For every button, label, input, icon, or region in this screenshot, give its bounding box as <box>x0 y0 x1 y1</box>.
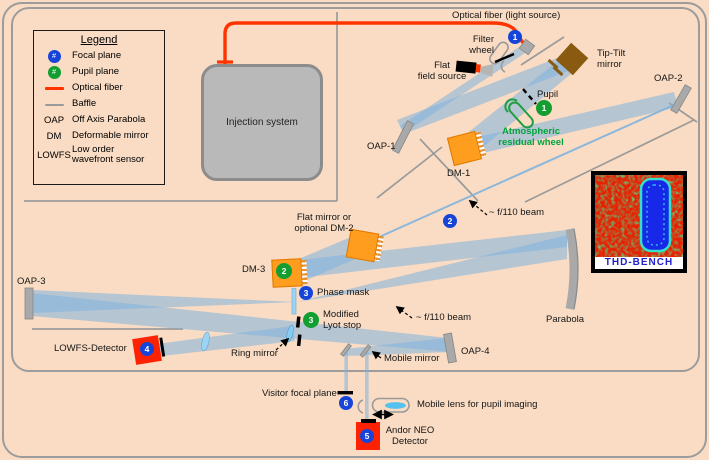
label-flat-dm2: Flat mirror or optional DM-2 <box>290 212 358 234</box>
andor-detector-window <box>361 419 376 424</box>
mobile-lens-element <box>385 402 406 409</box>
legend-symbol-cell <box>36 104 72 106</box>
legend-title: Legend <box>36 34 162 46</box>
injection-system-box: Injection system <box>201 64 323 181</box>
legend-item-lowfs: LOWFS Low order wavefront sensor <box>36 145 162 166</box>
injection-system-label: Injection system <box>226 117 298 128</box>
label-pupil: Pupil <box>537 89 558 100</box>
oap3-mirror <box>25 288 33 319</box>
focal-plane-icon: # <box>48 50 61 63</box>
thd-bench-inset-image: THD-BENCH <box>591 171 687 273</box>
focal-plane-marker-4: 4 <box>140 342 154 356</box>
arrow-f110-upper <box>470 201 487 215</box>
focal-plane-marker-6: 6 <box>339 396 353 410</box>
label-oap2: OAP-2 <box>654 73 683 84</box>
legend-symbol-cell: # <box>36 50 72 63</box>
label-parabola: Parabola <box>546 314 584 325</box>
beam-to-andor <box>365 352 369 421</box>
legend-label: Focal plane <box>72 51 121 61</box>
label-lyot-stop: Modified Lyot stop <box>323 309 361 331</box>
label-lowfs-detector: LOWFS-Detector <box>54 343 127 354</box>
label-dm3: DM-3 <box>242 264 265 275</box>
legend-item-pupil: # Pupil plane <box>36 65 162 80</box>
visitor-focal-plane-marker <box>338 391 354 394</box>
legend-term: DM <box>36 131 72 142</box>
focal-plane-marker-3: 3 <box>299 286 313 300</box>
arrow-f110-lower <box>397 307 412 318</box>
pupil-plane-marker-1: 1 <box>536 100 552 116</box>
legend-label: Optical fiber <box>72 83 123 93</box>
pupil-plane-marker-2: 2 <box>276 263 292 279</box>
baffle-icon <box>45 104 64 106</box>
label-atmospheric-wheel: Atmospheric residual wheel <box>493 126 569 148</box>
label-ring-mirror: Ring mirror <box>231 348 278 359</box>
label-f110-lower: ~ f/110 beam <box>416 312 471 323</box>
legend-definition: Off Axis Parabola <box>72 115 145 125</box>
pupil-plane-marker-3: 3 <box>303 312 319 328</box>
focal-plane-marker-5: 5 <box>360 429 374 443</box>
legend-symbol-cell: # <box>36 66 72 79</box>
legend-label: Pupil plane <box>72 67 119 77</box>
label-f110-upper: ~ f/110 beam <box>489 207 544 218</box>
legend-definition: Deformable mirror <box>72 131 149 141</box>
label-tip-tilt: Tip-Tilt mirror <box>597 48 625 70</box>
beam-to-visitor-focus <box>344 351 348 393</box>
parabola-mirror <box>570 229 574 309</box>
legend-term: OAP <box>36 115 72 126</box>
optical-bench-diagram: Legend # Focal plane # Pupil plane Optic… <box>0 0 709 460</box>
legend-item-focal: # Focal plane <box>36 49 162 64</box>
label-dm1: DM-1 <box>447 168 470 179</box>
legend-definition: Low order wavefront sensor <box>72 145 144 166</box>
label-oap1: OAP-1 <box>367 141 396 152</box>
mobile-lens-rail-arc <box>358 400 363 413</box>
optical-fiber-icon <box>45 87 64 90</box>
legend-symbol-cell <box>36 87 72 90</box>
label-mobile-lens: Mobile lens for pupil imaging <box>417 399 537 410</box>
legend-item-dm: DM Deformable mirror <box>36 129 162 144</box>
focal-plane-marker-2: 2 <box>443 214 457 228</box>
focal-plane-marker-1: 1 <box>508 30 522 44</box>
label-phase-mask: Phase mask <box>317 287 369 298</box>
coronagraph-image <box>595 175 683 257</box>
thd-bench-caption: THD-BENCH <box>595 257 683 269</box>
label-mobile-mirror: Mobile mirror <box>384 353 439 364</box>
legend-item-oap: OAP Off Axis Parabola <box>36 113 162 128</box>
legend-item-fiber: Optical fiber <box>36 81 162 96</box>
legend-box: Legend # Focal plane # Pupil plane Optic… <box>33 30 165 185</box>
label-flat-field-source: Flat field source <box>411 60 473 82</box>
legend-label: Baffle <box>72 99 96 109</box>
label-oap3: OAP-3 <box>17 276 46 287</box>
label-filter-wheel: Filter wheel <box>452 34 494 56</box>
label-andor: Andor NEO Detector <box>383 425 437 447</box>
legend-item-baffle: Baffle <box>36 97 162 112</box>
flat-field-emitter <box>476 64 481 72</box>
baffle-near-oap1 <box>377 147 442 198</box>
label-oap4: OAP-4 <box>461 346 490 357</box>
legend-term: LOWFS <box>36 150 72 161</box>
label-visitor-focal: Visitor focal plane <box>262 388 337 399</box>
inset-dark-hole <box>641 179 670 251</box>
label-optical-fiber: Optical fiber (light source) <box>452 10 560 21</box>
pupil-plane-icon: # <box>48 66 61 79</box>
phase-mask-element <box>292 289 296 315</box>
